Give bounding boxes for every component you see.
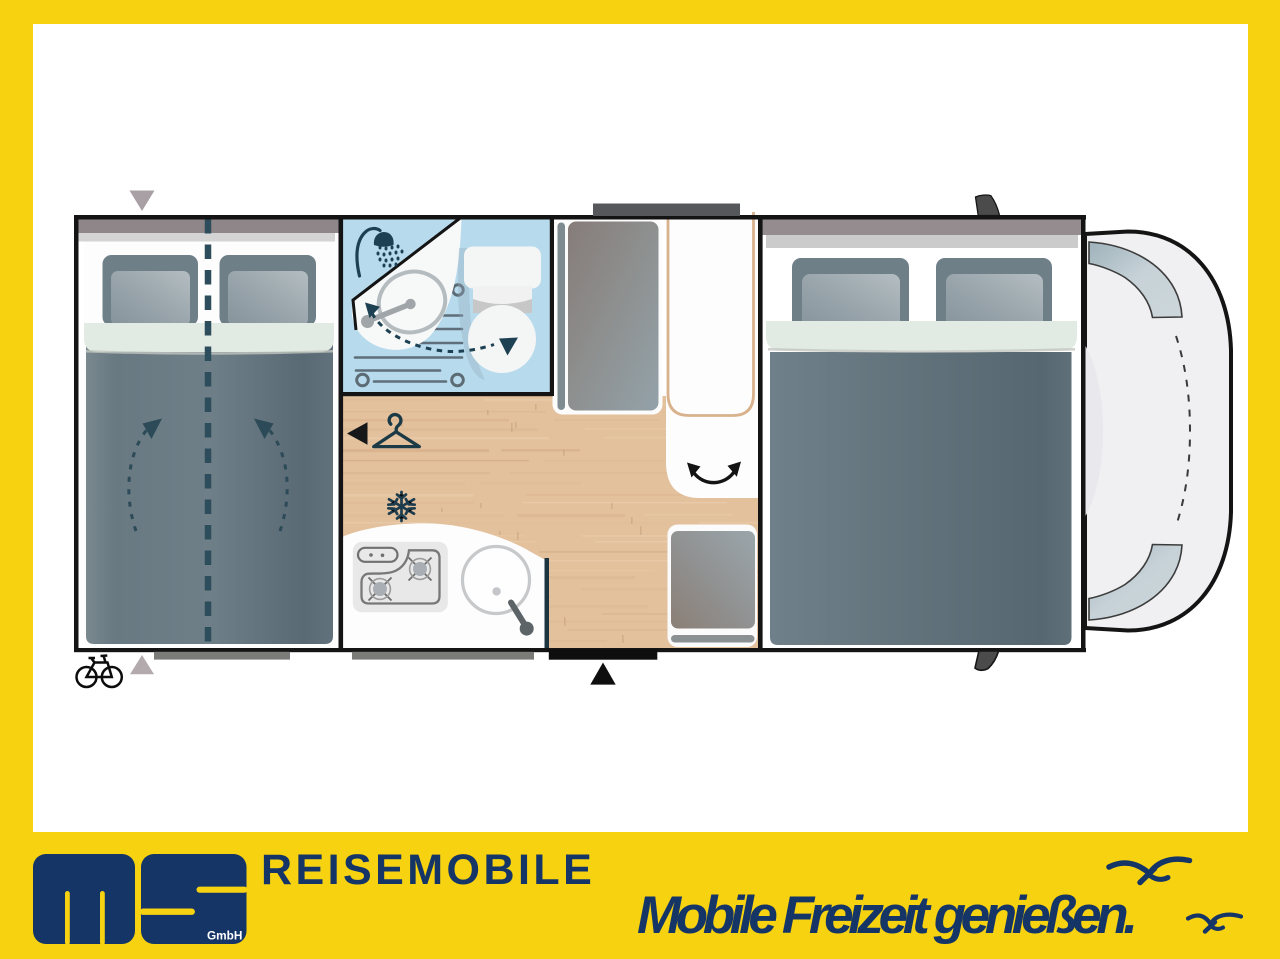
svg-text:GmbH: GmbH — [207, 929, 242, 943]
svg-text:Mobile Freizeit genießen.: Mobile Freizeit genießen. — [637, 886, 1138, 945]
svg-text:REISEMOBILE: REISEMOBILE — [261, 846, 595, 894]
